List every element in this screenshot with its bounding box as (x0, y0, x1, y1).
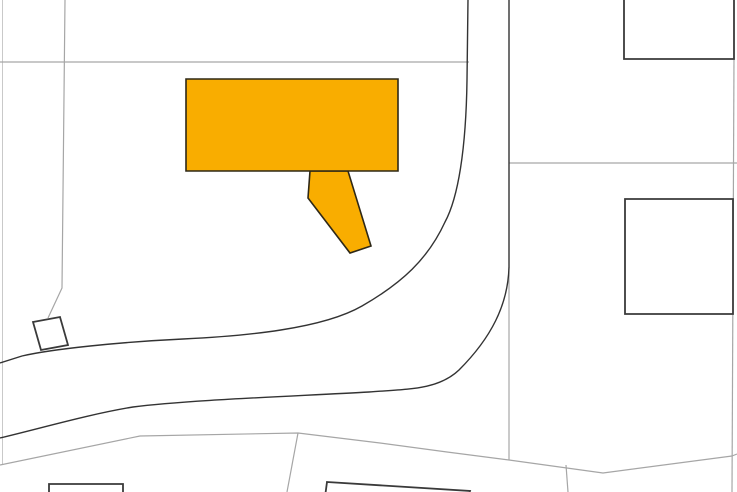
building-east[interactable] (625, 199, 733, 314)
cadastral-map[interactable] (0, 0, 737, 492)
building-south-west[interactable] (49, 484, 123, 492)
map-canvas[interactable] (0, 0, 737, 492)
building-northeast[interactable] (624, 0, 734, 59)
selected-building-main[interactable] (186, 79, 398, 171)
